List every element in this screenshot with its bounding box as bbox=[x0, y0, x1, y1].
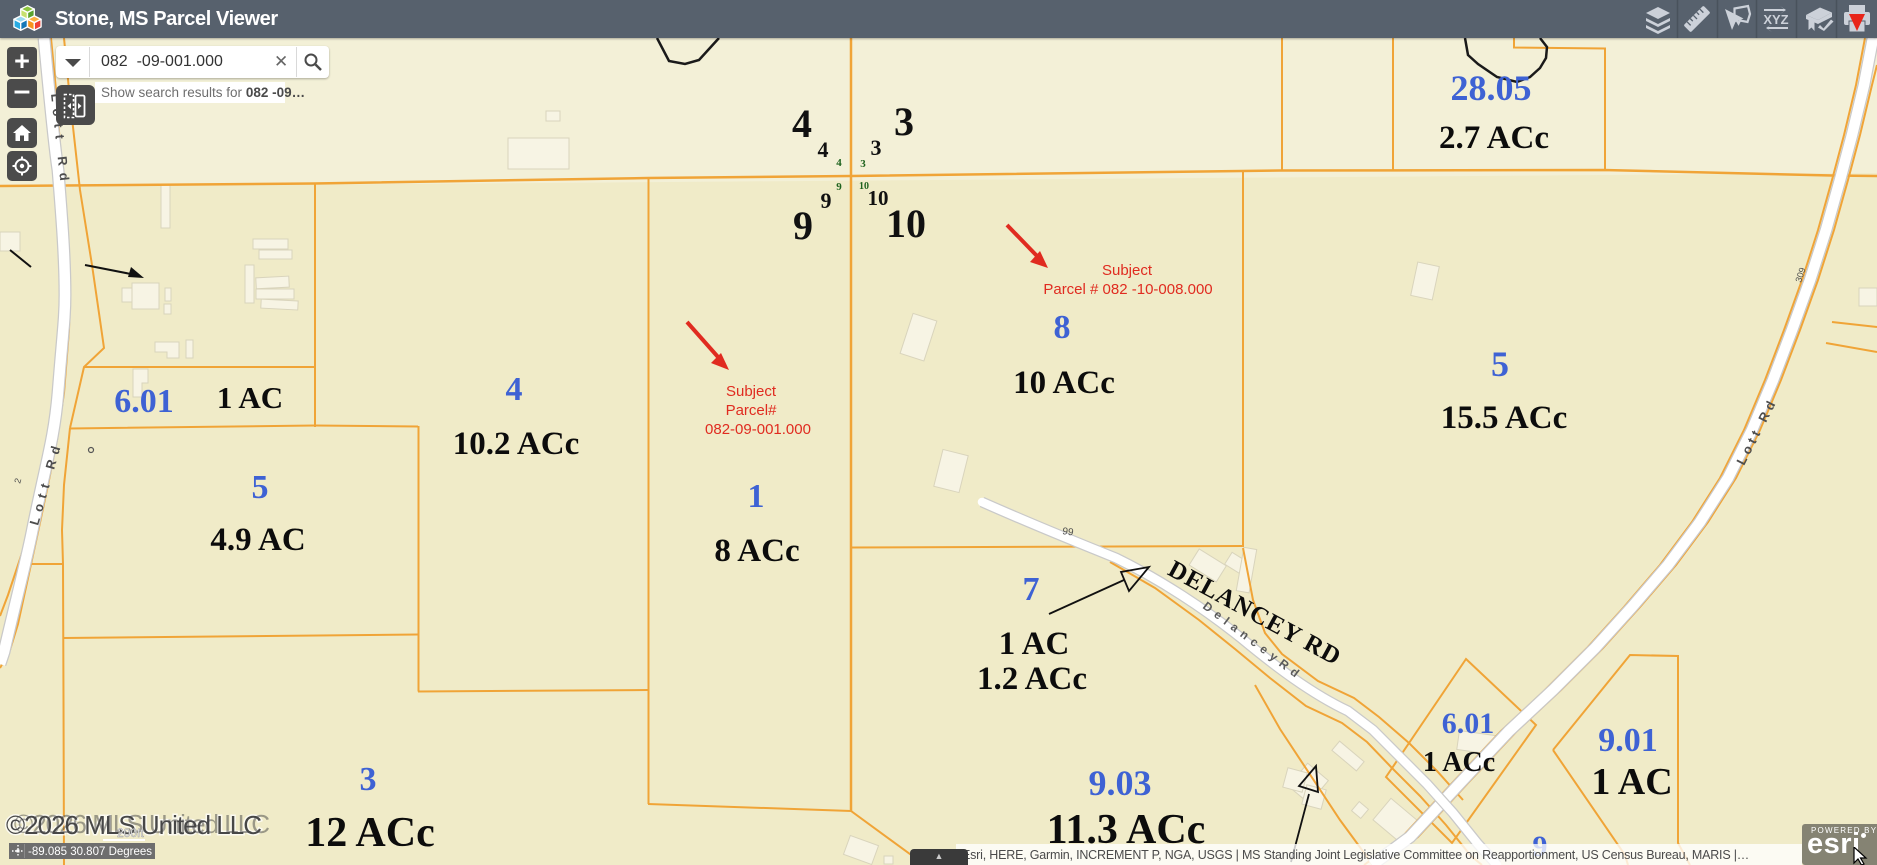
svg-text:9.03: 9.03 bbox=[1089, 763, 1152, 803]
svg-text:7: 7 bbox=[1023, 571, 1040, 608]
svg-text:2.7 ACc: 2.7 ACc bbox=[1439, 120, 1549, 156]
svg-text:3: 3 bbox=[871, 135, 882, 160]
svg-text:99: 99 bbox=[1062, 526, 1075, 539]
svg-text:1 AC: 1 AC bbox=[999, 626, 1070, 662]
svg-text:3: 3 bbox=[894, 99, 914, 144]
svg-text:12 ACc: 12 ACc bbox=[305, 810, 435, 856]
svg-text:4: 4 bbox=[792, 101, 812, 146]
svg-text:1 ACc: 1 ACc bbox=[1423, 747, 1495, 778]
svg-text:9: 9 bbox=[793, 203, 813, 248]
svg-text:4: 4 bbox=[836, 157, 842, 169]
svg-text:10: 10 bbox=[886, 201, 926, 246]
svg-text:1 AC: 1 AC bbox=[217, 380, 283, 415]
svg-text:1 AC: 1 AC bbox=[1591, 761, 1672, 803]
svg-text:200ft: 200ft bbox=[117, 826, 144, 840]
svg-text:10: 10 bbox=[868, 186, 889, 210]
svg-text:28.05: 28.05 bbox=[1451, 68, 1532, 108]
svg-text:Subject: Subject bbox=[1102, 262, 1153, 279]
svg-text:6.01: 6.01 bbox=[114, 383, 174, 420]
svg-text:4.9 AC: 4.9 AC bbox=[210, 522, 305, 558]
svg-text:5: 5 bbox=[1491, 344, 1509, 384]
svg-text:10.2 ACc: 10.2 ACc bbox=[453, 426, 580, 462]
svg-text:9.01: 9.01 bbox=[1598, 722, 1658, 759]
svg-text:5: 5 bbox=[252, 469, 269, 506]
svg-text:8: 8 bbox=[1054, 309, 1071, 346]
svg-text:10 ACc: 10 ACc bbox=[1013, 365, 1115, 401]
svg-text:082-09-001.000: 082-09-001.000 bbox=[705, 421, 811, 438]
svg-text:1.2 ACc: 1.2 ACc bbox=[977, 661, 1087, 697]
svg-text:3: 3 bbox=[360, 761, 377, 798]
svg-text:8 ACc: 8 ACc bbox=[714, 533, 799, 569]
svg-text:4: 4 bbox=[818, 137, 829, 162]
svg-text:9: 9 bbox=[821, 188, 832, 213]
svg-text:XYZ: XYZ bbox=[1763, 12, 1788, 27]
svg-text:Subject: Subject bbox=[726, 383, 777, 400]
svg-text:10: 10 bbox=[859, 181, 869, 192]
svg-text:Parcel#: Parcel# bbox=[726, 402, 778, 419]
svg-text:15.5 ACc: 15.5 ACc bbox=[1441, 400, 1568, 436]
svg-text:3: 3 bbox=[860, 158, 866, 170]
svg-text:1: 1 bbox=[748, 478, 765, 515]
svg-text:Parcel # 082 -10-008.000: Parcel # 082 -10-008.000 bbox=[1043, 281, 1212, 298]
svg-text:9: 9 bbox=[836, 181, 842, 193]
svg-text:6.01: 6.01 bbox=[1442, 707, 1495, 740]
svg-text:4: 4 bbox=[506, 371, 523, 408]
